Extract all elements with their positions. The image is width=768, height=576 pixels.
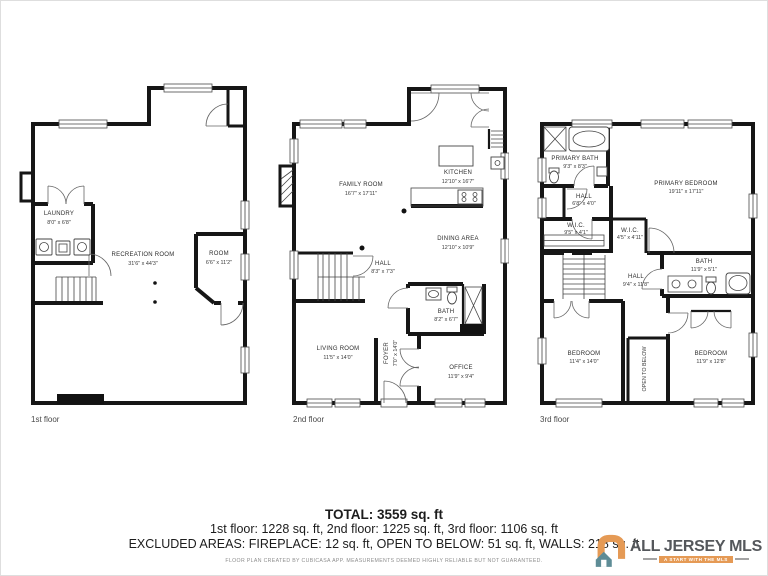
room-label-wic-left: W.I.C. <box>567 223 585 229</box>
mls-logo: ALL JERSEY MLS A START WITH THE MLS <box>594 532 762 568</box>
room-label-room: ROOM <box>209 251 229 257</box>
room-dims-bedroom-left: 11'4" x 14'0" <box>569 359 598 365</box>
ribbon-dash-right <box>735 558 749 560</box>
room-dims-recreation: 31'6" x 44'3" <box>128 261 158 267</box>
room-label-wic-right: W.I.C. <box>621 228 639 234</box>
room-label-bath: BATH <box>438 309 455 315</box>
room-label-hall-upper: HALL <box>576 194 592 200</box>
double-sink <box>668 276 702 292</box>
floor-label-1: 1st floor <box>31 415 59 424</box>
floor-plan-third: PRIMARY BATH 9'3" x 8'3" PRIMARY BEDROOM… <box>534 101 763 411</box>
room-dims-hall: 9'4" x 11'8" <box>623 282 649 288</box>
room-dims-foyer: 7'0" x 14'0" <box>393 340 399 367</box>
room-dims-wic-right: 4'5" x 4'11" <box>617 235 643 241</box>
floor-plan-first: LAUNDRY 8'0" x 6'8" RECREATION ROOM 31'6… <box>15 51 251 411</box>
doors <box>48 104 243 325</box>
floor-label-2: 2nd floor <box>293 415 324 424</box>
front-door-gap <box>381 399 407 407</box>
house-icon <box>594 532 626 568</box>
kitchen-island <box>439 146 473 166</box>
room-label-bath: BATH <box>696 259 713 265</box>
room-label-primary-bedroom: PRIMARY BEDROOM <box>654 181 718 187</box>
stove <box>458 190 482 204</box>
logo-tagline: A START WITH THE MLS <box>659 556 733 563</box>
room-label-hall: HALL <box>628 274 644 280</box>
room-label-kitchen: KITCHEN <box>444 170 472 176</box>
room-label-hall: HALL <box>375 261 391 267</box>
room-dims-family: 16'7" x 17'11" <box>345 191 377 197</box>
room-dims-office: 11'9" x 9'4" <box>448 374 474 380</box>
room-dims-laundry: 8'0" x 6'8" <box>47 220 71 226</box>
floor-label-3: 3rd floor <box>540 415 569 424</box>
room-label-dining: DINING AREA <box>437 236 478 242</box>
room-label-open-below: OPEN TO BELOW <box>642 346 648 392</box>
room-labels: LAUNDRY 8'0" x 6'8" RECREATION ROOM 31'6… <box>44 211 232 267</box>
room-dims-bath: 8'2" x 6'7" <box>434 317 458 323</box>
room-dims-bedroom-right: 11'9" x 12'8" <box>696 359 725 365</box>
room-label-bedroom-right: BEDROOM <box>695 351 728 357</box>
walls <box>21 88 245 403</box>
logo-ribbon: A START WITH THE MLS <box>630 556 762 563</box>
room-label-primary-bath: PRIMARY BATH <box>551 156 598 162</box>
room-dims-dining: 12'10" x 10'9" <box>442 245 475 251</box>
toilet <box>447 287 457 292</box>
stairs <box>56 277 96 301</box>
room-dims-living: 11'5" x 14'0" <box>323 355 352 361</box>
room-label-recreation: RECREATION ROOM <box>112 252 175 258</box>
toilet <box>706 277 716 282</box>
room-dims-kitchen: 12'10" x 16'7" <box>442 179 475 185</box>
room-dims-hall-upper: 6'8" x 4'0" <box>572 201 596 207</box>
kitchen-sink <box>491 157 504 169</box>
room-label-family: FAMILY ROOM <box>339 182 383 188</box>
windows <box>59 84 249 373</box>
room-label-bedroom-left: BEDROOM <box>568 351 601 357</box>
total-area: TOTAL: 3559 sq. ft <box>1 507 767 522</box>
room-dims-hall: 8'3" x 7'3" <box>371 269 395 275</box>
logo-name: ALL JERSEY MLS <box>630 538 762 555</box>
room-label-laundry: LAUNDRY <box>44 211 74 217</box>
hearth <box>57 394 104 404</box>
room-dims-bath: 11'9" x 5'1" <box>691 267 717 273</box>
room-dims-wic-left: 9'5" x 4'1" <box>564 230 588 236</box>
ribbon-dash-left <box>643 558 657 560</box>
fixtures <box>360 146 505 334</box>
room-dims-primary-bath: 9'3" x 8'3" <box>563 164 587 170</box>
floor-plan-sheet: LAUNDRY 8'0" x 6'8" RECREATION ROOM 31'6… <box>0 0 768 576</box>
floor-plan-second: FAMILY ROOM 16'7" x 17'11" KITCHEN 12'10… <box>277 51 509 411</box>
room-label-office: OFFICE <box>449 365 473 371</box>
room-dims-primary-bedroom: 19'11" x 17'11" <box>669 189 704 195</box>
room-dims-room: 6'6" x 11'2" <box>206 260 232 266</box>
room-label-living: LIVING ROOM <box>317 346 360 352</box>
room-label-foyer: FOYER <box>384 342 390 364</box>
stairs <box>563 255 605 299</box>
sink <box>597 167 607 176</box>
stairs <box>318 131 504 301</box>
